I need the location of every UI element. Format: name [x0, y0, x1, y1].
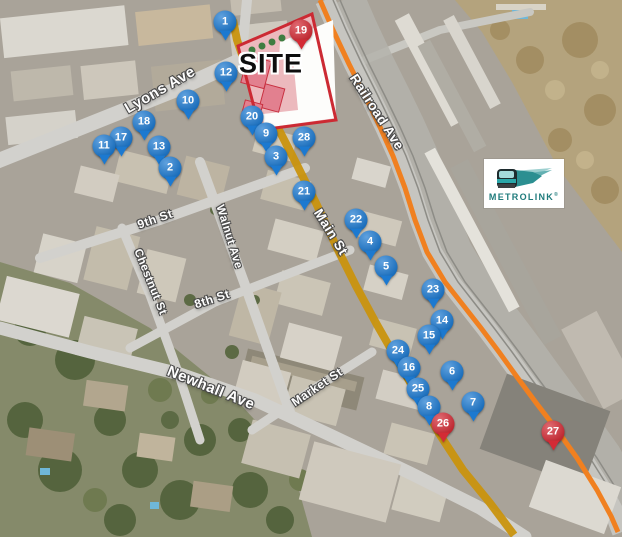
marker-number: 15	[423, 329, 435, 341]
marker-number: 10	[182, 94, 194, 106]
marker-number: 11	[98, 139, 110, 151]
marker-number: 3	[273, 150, 279, 162]
map-marker-11[interactable]: 11	[93, 135, 116, 158]
marker-number: 13	[153, 140, 165, 152]
map-marker-28[interactable]: 28	[293, 127, 316, 150]
map-marker-6[interactable]: 6	[441, 361, 464, 384]
marker-number: 5	[383, 260, 389, 272]
map-marker-10[interactable]: 10	[177, 90, 200, 113]
marker-number: 8	[426, 400, 432, 412]
marker-number: 20	[246, 110, 258, 122]
marker-number: 19	[295, 24, 307, 36]
map-marker-15[interactable]: 15	[418, 325, 441, 348]
marker-number: 2	[167, 161, 173, 173]
marker-number: 17	[115, 131, 127, 143]
map-marker-26[interactable]: 26	[432, 413, 455, 436]
marker-number: 28	[298, 131, 310, 143]
map-marker-9[interactable]: 9	[255, 123, 278, 146]
metrolink-logo: METROLINK®	[484, 159, 564, 208]
map-marker-21[interactable]: 21	[293, 181, 316, 204]
map-marker-22[interactable]: 22	[345, 209, 368, 232]
site-label: SITE	[239, 49, 303, 80]
marker-number: 22	[350, 213, 362, 225]
map-marker-13[interactable]: 13	[148, 136, 171, 159]
marker-number: 18	[138, 115, 150, 127]
map-marker-7[interactable]: 7	[462, 392, 485, 415]
marker-number: 4	[367, 235, 373, 247]
map-marker-5[interactable]: 5	[375, 256, 398, 279]
marker-number: 27	[547, 425, 559, 437]
marker-number: 23	[427, 283, 439, 295]
map-marker-27[interactable]: 27	[542, 421, 565, 444]
marker-number: 14	[436, 314, 448, 326]
marker-number: 9	[263, 127, 269, 139]
marker-number: 6	[449, 365, 455, 377]
map-marker-4[interactable]: 4	[359, 231, 382, 254]
marker-number: 25	[412, 382, 424, 394]
map-marker-2[interactable]: 2	[159, 157, 182, 180]
metrolink-wordmark: METROLINK	[489, 192, 554, 202]
map-marker-18[interactable]: 18	[133, 111, 156, 134]
marker-number: 21	[298, 185, 310, 197]
map-marker-1[interactable]: 1	[214, 11, 237, 34]
metrolink-train-icon	[495, 166, 553, 192]
aerial-map: SITE Lyons AveRailroad AveMain St9th StW…	[0, 0, 622, 537]
map-marker-19[interactable]: 19	[290, 20, 313, 43]
map-marker-3[interactable]: 3	[265, 146, 288, 169]
map-marker-16[interactable]: 16	[398, 357, 421, 380]
aerial-photo	[0, 0, 622, 537]
marker-number: 12	[220, 66, 232, 78]
map-marker-23[interactable]: 23	[422, 279, 445, 302]
marker-number: 7	[470, 396, 476, 408]
map-marker-12[interactable]: 12	[215, 62, 238, 85]
registered-mark: ®	[554, 192, 559, 198]
marker-number: 24	[392, 344, 404, 356]
marker-number: 26	[437, 417, 449, 429]
marker-number: 16	[403, 361, 415, 373]
marker-number: 1	[222, 15, 228, 27]
